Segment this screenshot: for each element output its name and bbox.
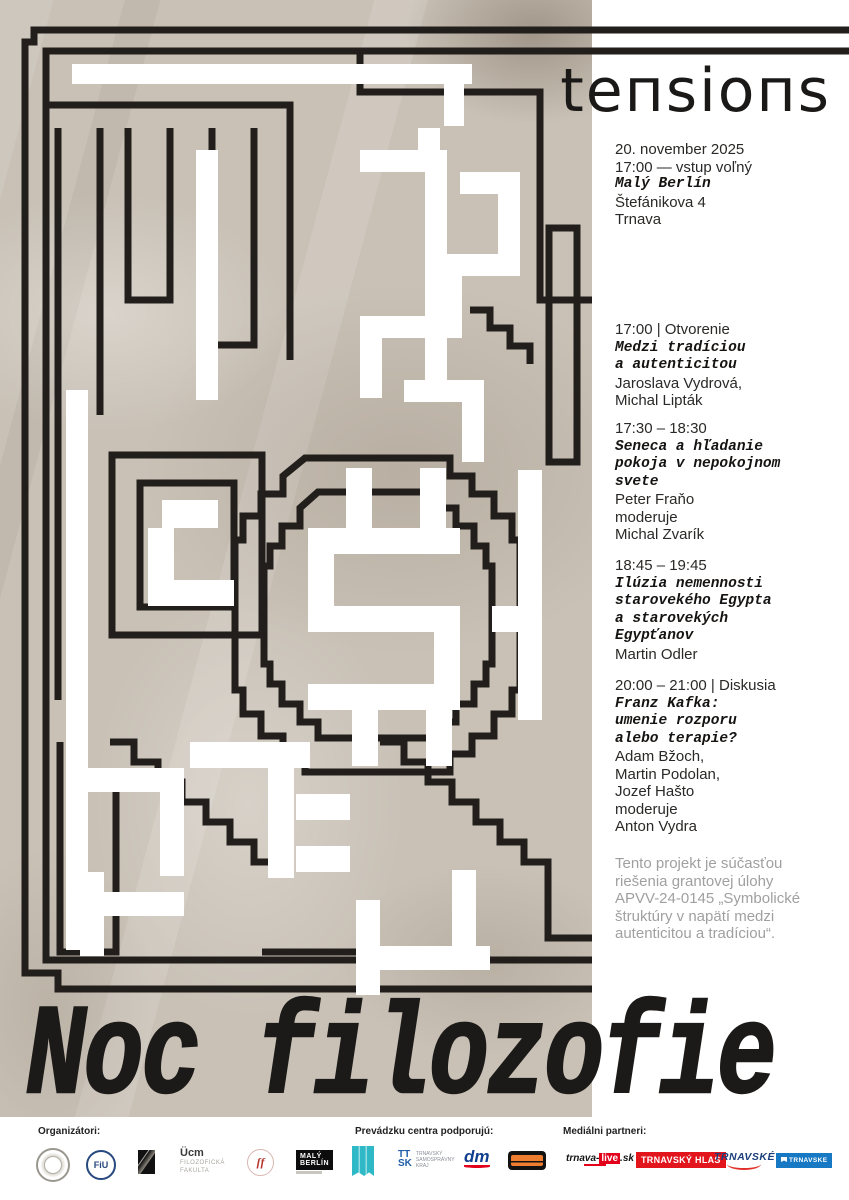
event-venue: Malý Berlín [615,176,837,194]
maly-berlin-logo-box: MALÝ BERLÍN [296,1150,333,1170]
event-city: Trnava [615,211,837,229]
schedule-speakers: Peter FraňomoderujeMichal Zvarík [615,491,837,544]
event-info-block: 20. november 2025 17:00 — vstup voľný Ma… [615,141,837,229]
schedule-speakers: Martin Odler [615,646,837,664]
poster-main-title: Noc filozofie [26,986,774,1131]
ucm-logo-text: Ücm [180,1148,225,1159]
trnavske-radio-text: TRNAVSKÉ [714,1151,775,1163]
event-date: 20. november 2025 [615,141,837,159]
schedule-talk-title: Franz Kafka:umenie rozporualebo terapie? [615,696,837,749]
paper-texture-panel [0,0,592,1117]
ucm-logo-line1: FILOZOFICKÁ [180,1159,225,1167]
schedule-item: 17:00 | Otvorenie Medzi tradícioua auten… [615,321,837,410]
schedule-item: 17:30 – 18:30 Seneca a hľadaniepokoja v … [615,420,837,544]
poster: teпsioпs 20. november 2025 17:00 — vstup… [0,0,849,1200]
event-entry: 17:00 — vstup voľný [615,159,837,177]
schedule-time: 17:30 – 18:30 [615,420,837,438]
media-partners-label: Mediálni partneri: [563,1126,646,1137]
black-square-logo-icon [138,1150,155,1174]
schedule-talk-title: Seneca a hľadaniepokoja v nepokojnomsvet… [615,439,837,492]
maly-berlin-logo: MALÝ BERLÍN [296,1150,333,1174]
ttsk-sigil: TTSK [398,1150,412,1168]
schedule-talk-title: Ilúzia nemennostistarovekého Egyptaa sta… [615,576,837,646]
trnava-live-underbar [584,1164,606,1166]
orange-badge-inner [511,1155,543,1166]
schedule-speakers: Jaroslava Vydrová,Michal Lipták [615,375,837,410]
trnavske-radio-smile-icon [727,1163,761,1170]
philosophy-society-logo-icon: ſf [247,1149,274,1176]
ttsk-line3: KRAJ [416,1163,455,1169]
organizers-label: Organizátori: [38,1126,100,1137]
maly-berlin-line1: MALÝ [300,1153,329,1160]
schedule-time: 18:45 – 19:45 [615,557,837,575]
maly-berlin-subtext-bar [296,1171,322,1174]
schedule-time: 20:00 – 21:00 | Diskusia [615,677,837,695]
footer: Organizátori: Prevádzku centra podporujú… [0,1117,849,1200]
ucm-faculty-logo: Ücm FILOZOFICKÁ FAKULTA [180,1148,225,1175]
trnavske-blue-flag-icon [781,1157,787,1162]
teal-flag-logo-icon [352,1146,374,1176]
trnavske-radio-logo: TRNAVSKÉ [714,1151,775,1170]
event-street: Štefánikova 4 [615,194,837,212]
schedule-item: 18:45 – 19:45 Ilúzia nemennostistaroveké… [615,557,837,663]
schedule-speakers: Adam Bžoch,Martin Podolan,Jozef Haštomod… [615,748,837,836]
trnava-live-part1: trnava- [566,1153,599,1164]
dm-logo-text: dm [464,1147,490,1166]
fiu-logo-icon: FiU [86,1150,116,1180]
schedule-time: 17:00 | Otvorenie [615,321,837,339]
dm-drogerie-logo: dm [464,1148,490,1168]
grant-note: Tento projekt je súčasťouriešenia granto… [615,855,837,943]
ttsk-text: TRNAVSKÝ SAMOSPRÁVNY KRAJ [416,1150,455,1169]
event-series-title: teпsioпs [560,56,831,126]
trnava-live-part3: .sk [620,1153,634,1164]
maly-berlin-line2: BERLÍN [300,1160,329,1167]
trnavske-blue-logo: TRNAVSKE [776,1153,832,1168]
orange-badge-logo-icon [508,1151,546,1170]
schedule-talk-title: Medzi tradícioua autenticitou [615,340,837,375]
sponsors-label: Prevádzku centra podporujú: [355,1126,493,1137]
sav-institute-logo-icon [36,1148,70,1182]
trnava-live-logo: trnava-live.sk [566,1153,634,1166]
schedule-item: 20:00 – 21:00 | Diskusia Franz Kafka:ume… [615,677,837,836]
trnavsky-hlas-logo: TRNAVSKÝ HLAS [636,1152,726,1168]
ttsk-region-logo: TTSK TRNAVSKÝ SAMOSPRÁVNY KRAJ [398,1150,455,1169]
trnavske-blue-text: TRNAVSKE [789,1157,827,1164]
trnava-live-part2: live [599,1153,620,1164]
ucm-logo-line2: FAKULTA [180,1167,225,1175]
